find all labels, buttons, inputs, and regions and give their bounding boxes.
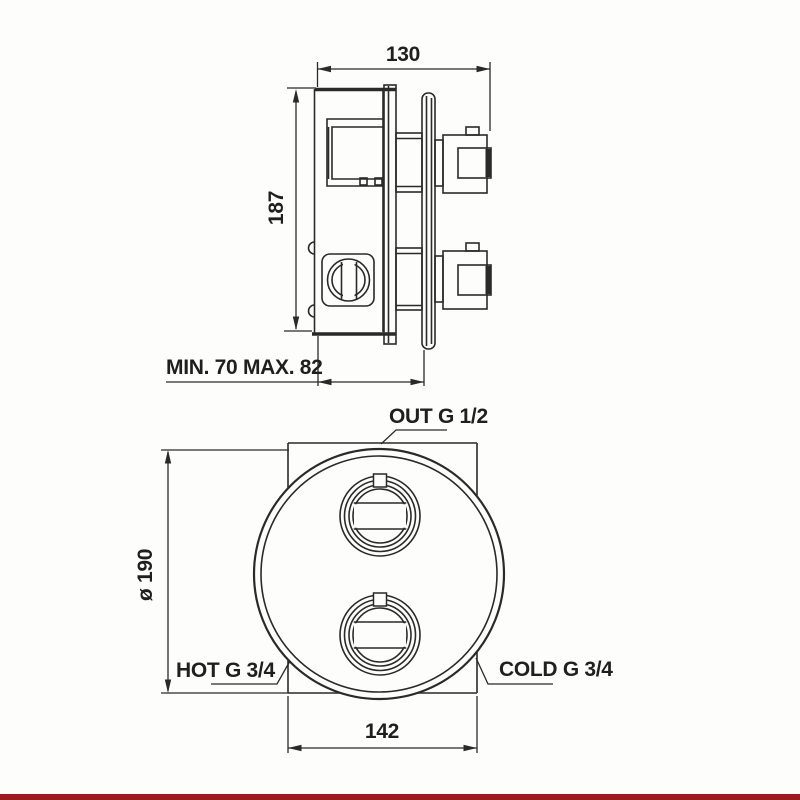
- dim-142: 142: [288, 696, 477, 753]
- label-out-text: OUT G 1/2: [389, 405, 488, 428]
- front-view: ø 190 142 OUT G 1/2 HOT G 3/4 COLD G 3/4: [134, 405, 613, 753]
- dim-187-label: 187: [265, 191, 288, 225]
- lower-neck: [396, 248, 422, 310]
- spec-sheet: 130 187 MIN. 70 MAX. 82: [0, 0, 800, 800]
- thermostat-knob: [340, 474, 420, 556]
- brand-accent-bar: [0, 794, 800, 800]
- side-view: 130 187 MIN. 70 MAX. 82: [166, 43, 491, 386]
- label-cold: COLD G 3/4: [476, 658, 613, 684]
- dim-190: ø 190: [134, 450, 289, 693]
- upper-neck: [396, 133, 422, 192]
- dim-190-label: ø 190: [134, 549, 157, 601]
- label-cold-text: COLD G 3/4: [499, 658, 613, 681]
- label-hot: HOT G 3/4: [176, 659, 290, 684]
- side-view-knob: [322, 254, 374, 306]
- dim-142-label: 142: [365, 720, 399, 743]
- label-hot-text: HOT G 3/4: [176, 659, 275, 682]
- flow-control-knob: [340, 593, 420, 675]
- mounting-plate: [384, 85, 396, 344]
- mounting-lug-top: [309, 242, 315, 254]
- dim-depth-label: MIN. 70 MAX. 82: [166, 356, 323, 379]
- upper-connector: [435, 127, 491, 193]
- technical-drawing: 130 187 MIN. 70 MAX. 82: [0, 0, 800, 800]
- cartridge-window: [327, 119, 384, 186]
- side-view-body: [309, 89, 397, 334]
- mounting-lug-bottom: [309, 305, 315, 317]
- lower-connector: [435, 243, 491, 309]
- dim-130: 130: [318, 43, 491, 131]
- label-out: OUT G 1/2: [381, 405, 488, 444]
- dim-187: 187: [265, 88, 316, 331]
- flange-edge: [422, 93, 435, 349]
- dim-130-label: 130: [386, 43, 420, 66]
